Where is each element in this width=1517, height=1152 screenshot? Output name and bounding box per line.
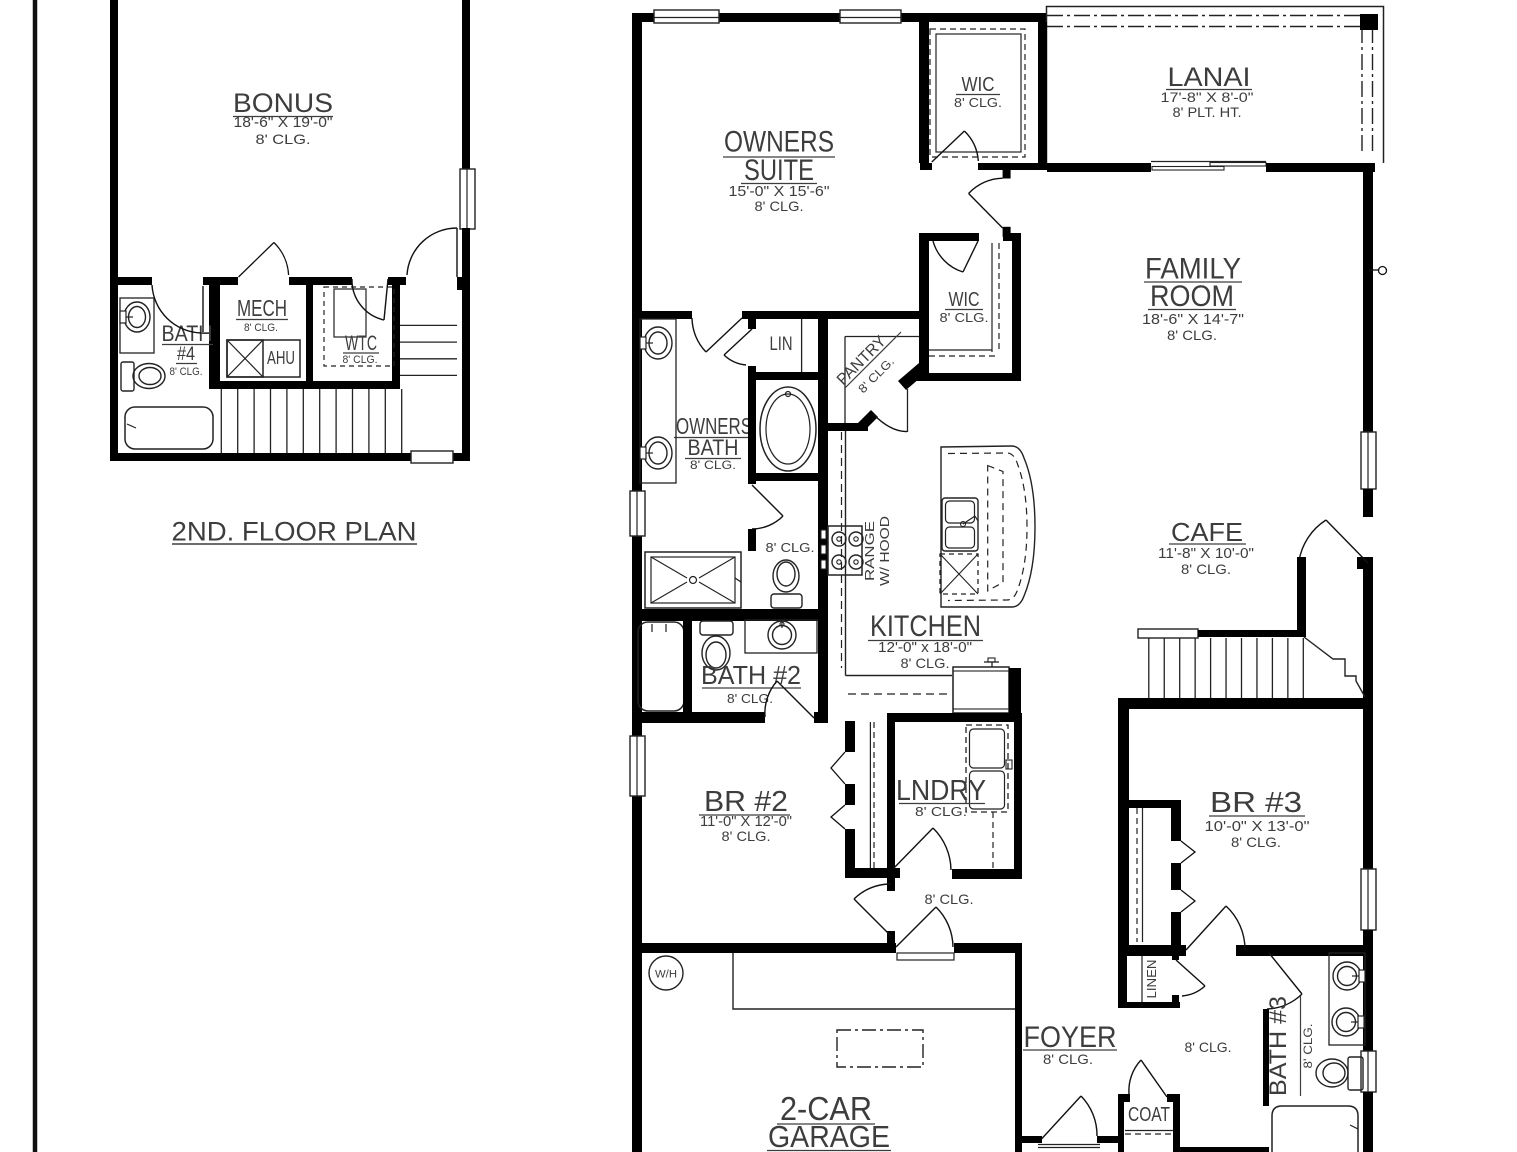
svg-text:BATH #2: BATH #2 [701,660,801,690]
svg-text:8' CLG.: 8' CLG. [940,310,989,325]
svg-text:8' CLG.: 8' CLG. [256,131,311,147]
svg-text:8' CLG.: 8' CLG. [1185,1039,1232,1055]
svg-text:ROOM: ROOM [1150,280,1234,313]
svg-text:8' CLG.: 8' CLG. [170,366,203,378]
svg-text:2ND. FLOOR PLAN: 2ND. FLOOR PLAN [172,517,417,547]
svg-text:8' CLG.: 8' CLG. [690,458,736,472]
svg-text:8' CLG.: 8' CLG. [1167,327,1217,343]
svg-text:8' CLG.: 8' CLG. [925,891,974,907]
svg-text:8' CLG.: 8' CLG. [901,655,950,671]
svg-text:8' CLG.: 8' CLG. [343,354,378,366]
svg-text:GARAGE: GARAGE [768,1119,890,1152]
svg-text:RANGE: RANGE [862,521,877,581]
svg-text:8' CLG.: 8' CLG. [1181,561,1231,577]
svg-text:W/ HOOD: W/ HOOD [877,516,892,586]
svg-text:8' CLG.: 8' CLG. [1301,1024,1315,1069]
svg-text:8' CLG.: 8' CLG. [766,540,815,555]
svg-text:BATH: BATH [688,435,739,460]
svg-text:8' CLG.: 8' CLG. [954,95,1002,110]
svg-text:MECH: MECH [237,295,287,321]
svg-text:#4: #4 [177,344,195,365]
svg-text:LNDRY: LNDRY [896,775,986,807]
svg-text:WIC: WIC [949,289,980,311]
svg-text:COAT: COAT [1128,1104,1170,1126]
svg-text:8' CLG.: 8' CLG. [722,828,771,844]
svg-text:LANAI: LANAI [1168,62,1251,92]
svg-text:W/H: W/H [655,969,677,981]
svg-text:LINEN: LINEN [1144,960,1159,999]
svg-text:8' PLT. HT.: 8' PLT. HT. [1173,104,1242,120]
svg-text:WTC: WTC [345,332,377,355]
svg-text:LIN: LIN [770,334,793,355]
svg-text:10'-0" X 13'-0": 10'-0" X 13'-0" [1205,818,1310,835]
svg-text:CAFE: CAFE [1171,517,1243,547]
svg-text:12'-0" x 18'-0": 12'-0" x 18'-0" [878,640,972,656]
svg-text:FOYER: FOYER [1024,1021,1117,1054]
svg-text:KITCHEN: KITCHEN [870,610,981,643]
svg-text:18'-6" X 19'-0": 18'-6" X 19'-0" [234,114,333,131]
svg-text:8' CLG.: 8' CLG. [915,804,967,819]
svg-text:18'-6" X 14'-7": 18'-6" X 14'-7" [1142,311,1244,328]
svg-text:11'-8" X 10'-0": 11'-8" X 10'-0" [1158,546,1254,562]
svg-text:AHU: AHU [267,348,295,368]
svg-text:8' CLG.: 8' CLG. [244,322,278,334]
svg-text:BATH: BATH [162,321,213,346]
svg-text:8' CLG.: 8' CLG. [1043,1051,1093,1067]
svg-text:17'-8" X 8'-0": 17'-8" X 8'-0" [1161,89,1254,105]
svg-text:8' CLG.: 8' CLG. [755,198,804,214]
svg-text:WIC: WIC [962,74,995,96]
svg-text:BATH #3: BATH #3 [1265,996,1292,1096]
svg-text:8' CLG.: 8' CLG. [1231,834,1281,850]
svg-text:BR #3: BR #3 [1210,787,1302,819]
